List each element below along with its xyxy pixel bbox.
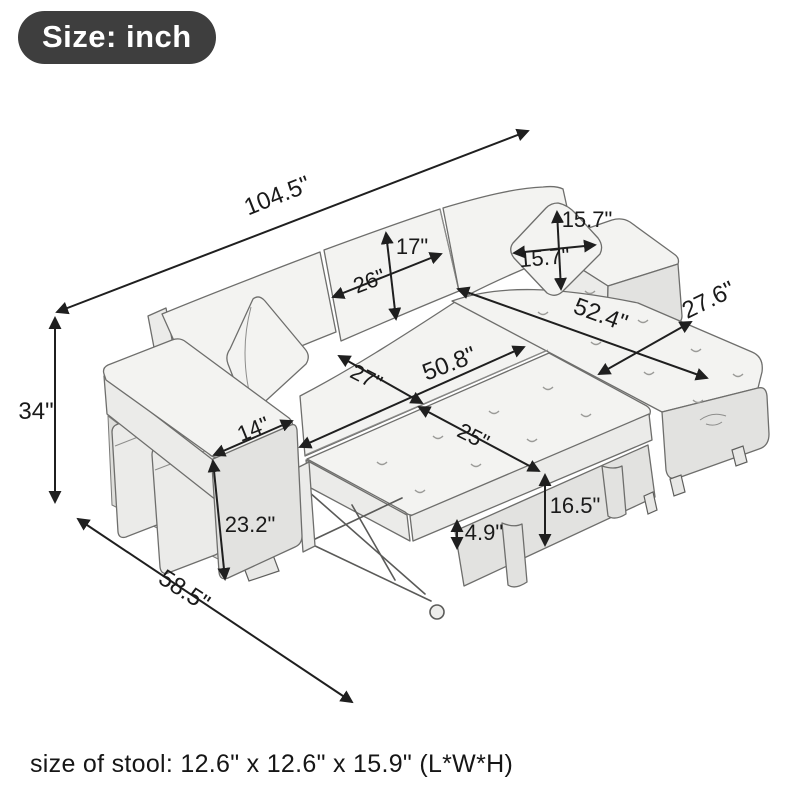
product-dimension-diagram: 104.5" 34" 58.5" 14" 23.2" 17" <box>0 0 800 800</box>
chaise-leg-front <box>670 475 685 496</box>
caster-wheel <box>430 605 444 619</box>
dimension-label: 15.7" <box>562 207 613 232</box>
dimension-label: 104.5" <box>240 171 314 221</box>
dimension-label: 16.5" <box>550 493 601 518</box>
sofa-dimension-drawing: 104.5" 34" 58.5" 14" 23.2" 17" <box>0 0 800 800</box>
dimension-label: 58.5" <box>154 564 215 617</box>
dimension-label: 23.2" <box>225 512 276 537</box>
stool-size-caption: size of stool: 12.6" x 12.6" x 15.9" (L*… <box>30 750 513 779</box>
dimension-label: 4.9" <box>465 520 503 545</box>
sofa-line-drawing <box>104 187 770 619</box>
dim-overall-height: 34" <box>18 318 55 502</box>
bed-pull-strap <box>502 523 527 587</box>
dimension-label: 27.6" <box>678 276 739 324</box>
dimension-label: 15.7" <box>518 243 571 272</box>
size-unit-badge: Size: inch <box>18 11 216 64</box>
dimension-label: 17" <box>396 234 428 259</box>
dim-mattress-thickness: 4.9" <box>457 520 503 548</box>
dimension-label: 34" <box>18 398 53 425</box>
